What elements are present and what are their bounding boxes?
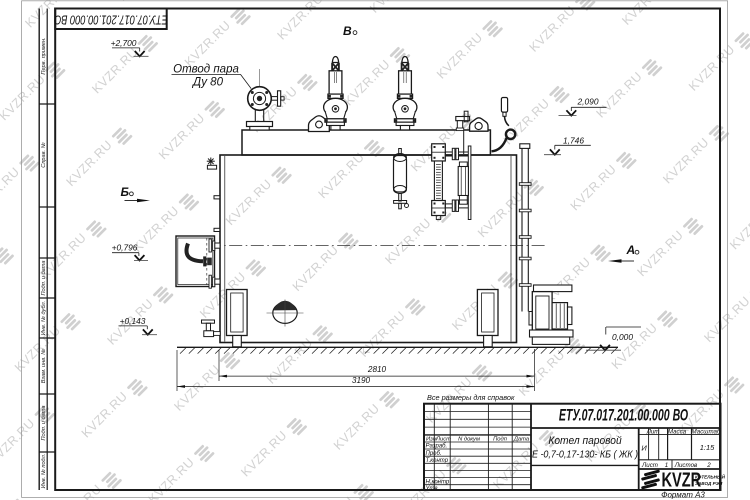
- svg-text:Котел паровой: Котел паровой: [548, 435, 621, 447]
- svg-text:Отвод пара: Отвод пара: [173, 64, 239, 76]
- svg-text:KVZR.RU: KVZR.RU: [316, 150, 367, 201]
- svg-text:Подп. и дата: Подп. и дата: [41, 405, 47, 440]
- svg-text:Разраб.: Разраб.: [426, 444, 448, 450]
- svg-text:Подп: Подп: [493, 436, 508, 442]
- svg-text:KVZR.RU: KVZR.RU: [89, 45, 140, 96]
- svg-text:KVZR.RU: KVZR.RU: [182, 18, 233, 69]
- svg-text:KVZR.RU: KVZR.RU: [331, 401, 382, 452]
- svg-text:KVZR.RU: KVZR.RU: [290, 243, 341, 294]
- svg-text:+0,796: +0,796: [112, 243, 138, 253]
- svg-text:ЕТУ.07.017.201.00.000 ВО: ЕТУ.07.017.201.00.000 ВО: [54, 12, 168, 26]
- svg-text:Инв. № подл.: Инв. № подл.: [41, 454, 47, 489]
- svg-text:Проб.: Проб.: [426, 451, 442, 457]
- svg-text:KVZR.RU: KVZR.RU: [701, 294, 750, 345]
- svg-text:KVZR.RU: KVZR.RU: [357, 308, 408, 359]
- svg-text:Лит: Лит: [646, 429, 660, 436]
- svg-text:KVZR.RU: KVZR.RU: [382, 216, 433, 267]
- svg-text:3190: 3190: [352, 376, 371, 385]
- svg-text:KVZR.RU: KVZR.RU: [635, 228, 686, 279]
- svg-text:0,000: 0,000: [612, 332, 633, 342]
- svg-text:KVZR.RU: KVZR.RU: [146, 455, 197, 500]
- svg-text:Н.контр: Н.контр: [426, 479, 450, 485]
- svg-text:И: И: [641, 444, 647, 453]
- svg-text:А: А: [626, 243, 636, 257]
- svg-text:Лист: Лист: [435, 436, 451, 442]
- svg-text:KVZR.RU: KVZR.RU: [434, 30, 485, 81]
- svg-text:KVZR.RU: KVZR.RU: [0, 72, 48, 123]
- svg-text:KVZR.RU: KVZR.RU: [341, 57, 392, 108]
- svg-text:KVZR.RU: KVZR.RU: [238, 428, 289, 479]
- svg-text:KVZR: KVZR: [662, 468, 702, 491]
- svg-text:Утв.: Утв.: [425, 486, 440, 492]
- svg-text:Т.контр: Т.контр: [426, 458, 449, 464]
- svg-text:В: В: [343, 24, 352, 38]
- svg-text:Формат А3: Формат А3: [661, 491, 705, 500]
- svg-text:Перв. примен.: Перв. примен.: [41, 37, 47, 74]
- svg-text:KVZR.RU: KVZR.RU: [568, 162, 619, 213]
- svg-text:Справ. №: Справ. №: [41, 142, 47, 167]
- svg-text:КОТЕЛЬНЫЙ: КОТЕЛЬНЫЙ: [695, 473, 726, 480]
- svg-text:KVZR.RU: KVZR.RU: [130, 204, 181, 255]
- svg-text:2: 2: [706, 462, 711, 469]
- svg-text:Подп. и дата: Подп. и дата: [41, 260, 47, 295]
- svg-text:N докум: N докум: [458, 436, 480, 442]
- svg-text:KVZR.RU: KVZR.RU: [609, 321, 660, 372]
- svg-text:Б: Б: [121, 185, 130, 199]
- svg-text:Ду 80: Ду 80: [191, 77, 224, 89]
- svg-text:+2,700: +2,700: [111, 38, 137, 48]
- svg-text:ЕТУ.07.017.201.00.000 ВО: ЕТУ.07.017.201.00.000 ВО: [559, 405, 688, 424]
- svg-text:KVZR.RU: KVZR.RU: [275, 0, 326, 43]
- svg-text:KVZR.RU: KVZR.RU: [0, 416, 38, 467]
- svg-text:Лист: Лист: [641, 462, 658, 469]
- svg-text:KVZR.RU: KVZR.RU: [171, 362, 222, 413]
- svg-text:KVZR.RU: KVZR.RU: [305, 494, 356, 500]
- svg-text:KVZR.RU: KVZR.RU: [79, 389, 130, 440]
- svg-text:2810: 2810: [367, 365, 387, 374]
- svg-text:Дата: Дата: [513, 436, 530, 442]
- svg-text:KVZR.RU: KVZR.RU: [594, 69, 645, 120]
- svg-text:KVZR.RU: KVZR.RU: [0, 165, 22, 216]
- svg-text:Взам. инв. №: Взам. инв. №: [41, 349, 47, 384]
- svg-text:KVZR.RU: KVZR.RU: [686, 42, 737, 93]
- svg-text:KVZR.RU: KVZR.RU: [660, 135, 711, 186]
- svg-text:+0,143: +0,143: [120, 316, 146, 326]
- svg-text:KVZR.RU: KVZR.RU: [156, 111, 207, 162]
- svg-text:2,090: 2,090: [577, 97, 599, 107]
- svg-text:KVZR.RU: KVZR.RU: [64, 138, 115, 189]
- svg-text:Масштаб: Масштаб: [692, 429, 721, 436]
- svg-text:KVZR.RU: KVZR.RU: [527, 3, 578, 54]
- svg-text:Инв. № дубл.: Инв. № дубл.: [41, 301, 47, 335]
- svg-text:Все размеры для справок: Все размеры для справок: [427, 393, 515, 402]
- svg-text:KVZR.RU: KVZR.RU: [223, 177, 274, 228]
- svg-text:1,746: 1,746: [563, 136, 584, 146]
- svg-text:Е -0,7-0,17-130- КБ ( ЖК ): Е -0,7-0,17-130- КБ ( ЖК ): [532, 449, 638, 461]
- svg-text:KVZR.RU: KVZR.RU: [619, 0, 670, 28]
- svg-text:KVZR.RU: KVZR.RU: [475, 189, 526, 240]
- svg-text:KVZR.RU: KVZR.RU: [516, 347, 567, 398]
- svg-text:1:15: 1:15: [700, 443, 715, 452]
- svg-text:ЗАВОД РЭП: ЗАВОД РЭП: [695, 481, 723, 486]
- svg-text:Масса: Масса: [668, 429, 687, 436]
- svg-text:KVZR.RU: KVZR.RU: [727, 201, 750, 252]
